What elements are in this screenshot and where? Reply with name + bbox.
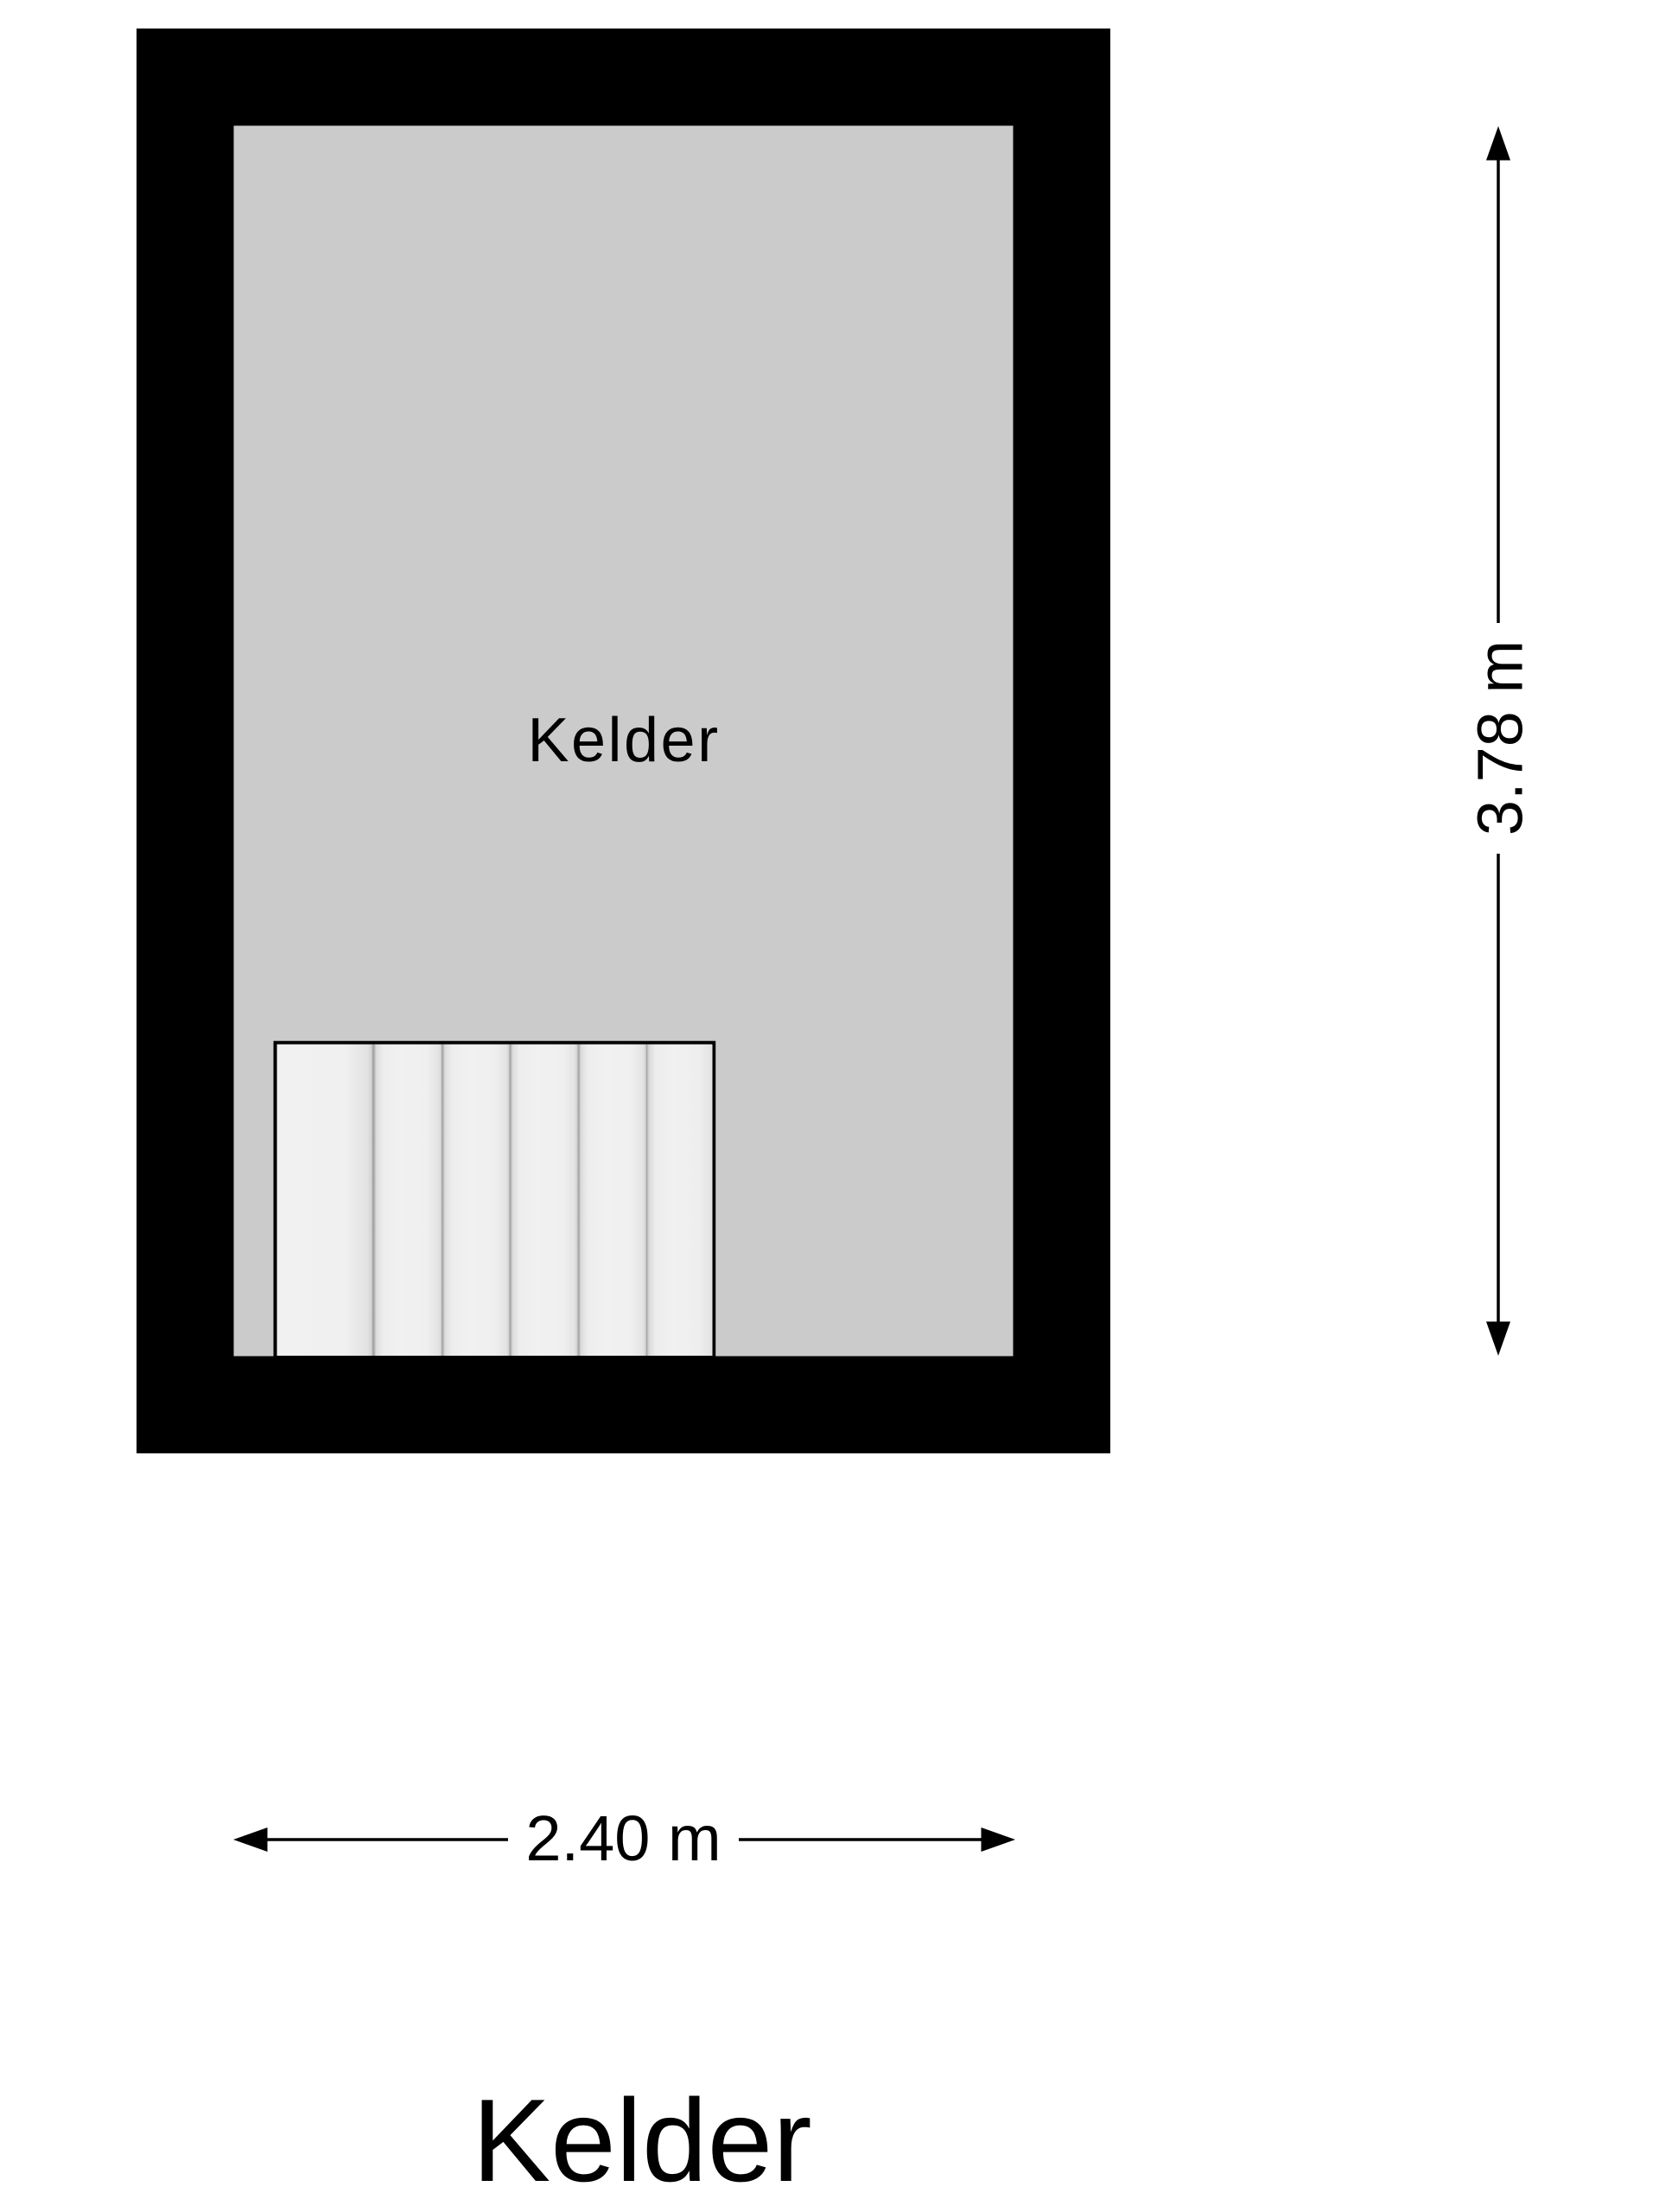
svg-text:Kelder: Kelder <box>472 2075 811 2206</box>
svg-text:Kelder: Kelder <box>527 706 720 775</box>
svg-text:2.40 m: 2.40 m <box>525 1802 721 1874</box>
svg-text:3.78 m: 3.78 m <box>1465 640 1536 836</box>
